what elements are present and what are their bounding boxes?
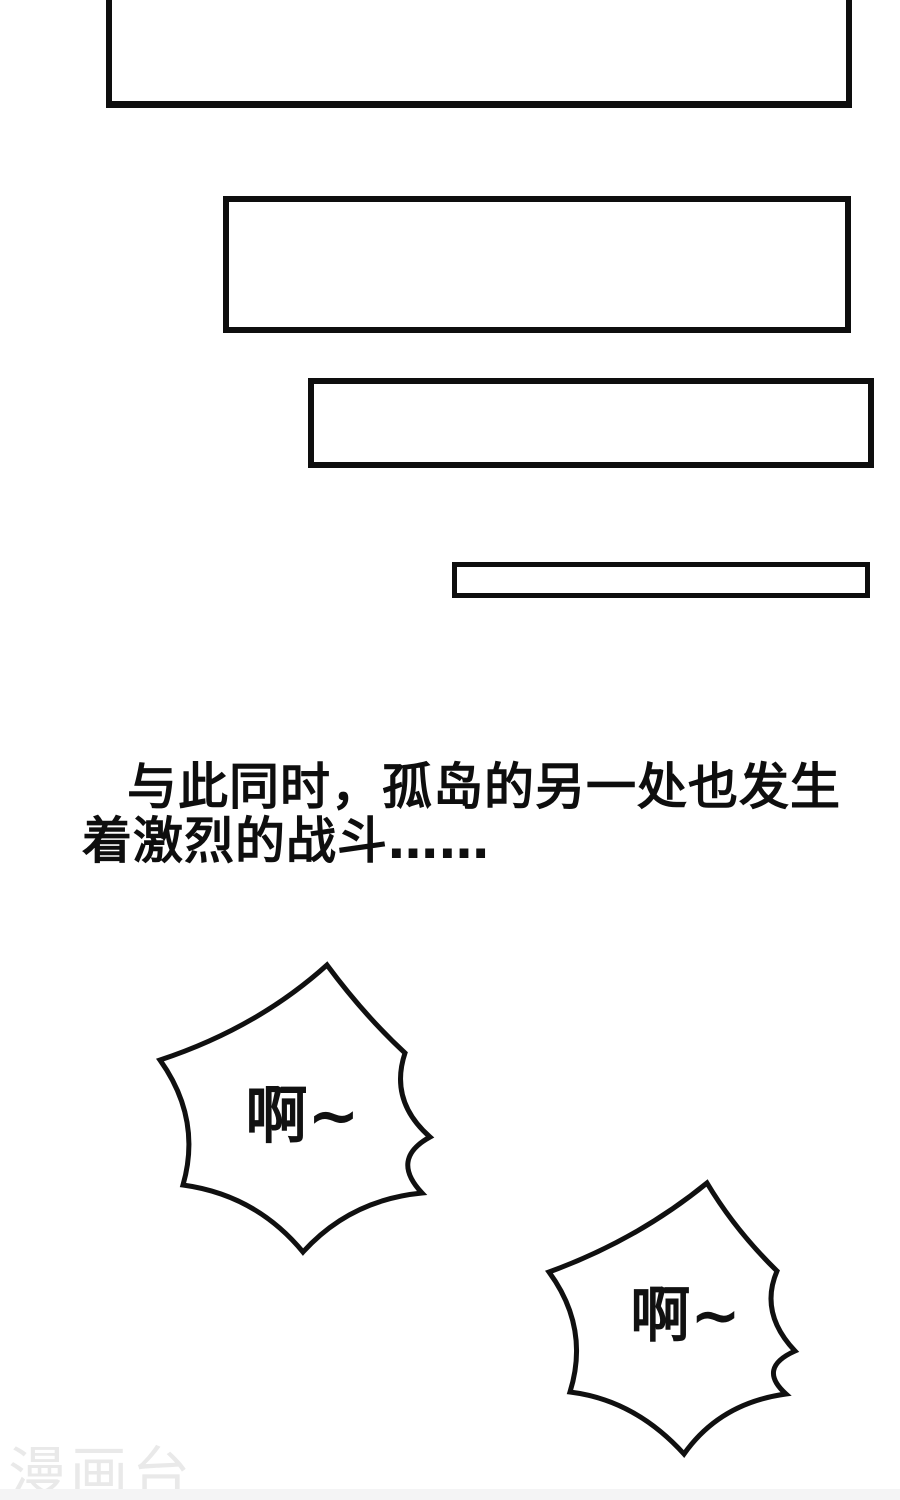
narration-line-2: 着激烈的战斗……: [82, 814, 841, 868]
comic-page: 与此同时，孤岛的另一处也发生 着激烈的战斗…… 啊~ 啊~ 漫画台: [0, 0, 900, 1500]
narration-caption: 与此同时，孤岛的另一处也发生 着激烈的战斗……: [82, 760, 841, 868]
page-bottom-strip: [0, 1489, 900, 1500]
scream-text-1: 啊~: [230, 1082, 375, 1150]
empty-panel-fourth: [452, 562, 870, 598]
scream-text-2: 啊~: [613, 1283, 758, 1349]
empty-panel-top: [106, 0, 852, 108]
empty-panel-second: [223, 196, 851, 333]
empty-panel-third: [308, 378, 874, 468]
narration-line-1: 与此同时，孤岛的另一处也发生: [82, 760, 841, 814]
